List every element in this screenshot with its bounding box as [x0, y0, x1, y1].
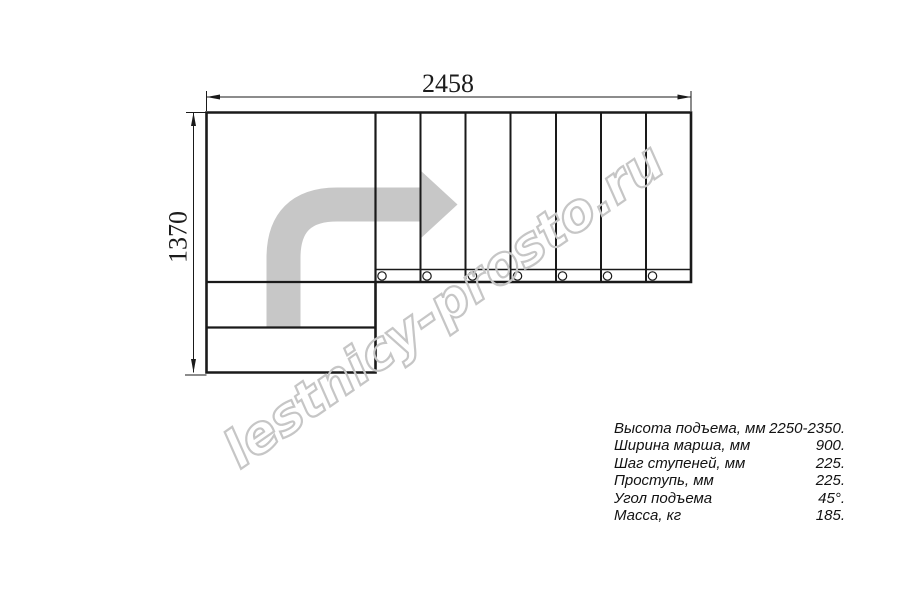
spec-label: Шаг ступеней, мм: [614, 455, 816, 472]
dim-arrow-up-icon: [191, 113, 196, 127]
spec-row-angle: Угол подъема 45°.: [614, 490, 845, 507]
spec-value: 45°.: [818, 490, 845, 507]
spec-table: Высота подъема, мм 2250-2350. Ширина мар…: [614, 420, 845, 525]
bolt-circle: [423, 272, 431, 280]
bolt-circle: [378, 272, 386, 280]
bolt-circle: [603, 272, 611, 280]
dim-arrow-left-icon: [207, 95, 221, 100]
spec-row-march-width: Ширина марша, мм 900.: [614, 437, 845, 454]
dim-arrow-right-icon: [678, 95, 692, 100]
dimension-height-value: 1370: [164, 211, 193, 263]
spec-value: 185.: [816, 507, 845, 524]
spec-value: 900.: [816, 437, 845, 454]
spec-label: Ширина марша, мм: [614, 437, 816, 454]
spec-label: Проступь, мм: [614, 472, 816, 489]
dim-arrow-down-icon: [191, 359, 196, 373]
walk-direction-arrow: [284, 170, 458, 327]
spec-row-mass: Масса, кг 185.: [614, 507, 845, 524]
dimension-width-value: 2458: [422, 69, 474, 98]
bolt-circle: [468, 272, 476, 280]
bolt-circle: [648, 272, 656, 280]
spec-value: 225.: [816, 455, 845, 472]
spec-value: 225.: [816, 472, 845, 489]
spec-value: 2250-2350.: [769, 420, 845, 437]
bolt-circle: [558, 272, 566, 280]
spec-label: Масса, кг: [614, 507, 816, 524]
walk-arrow-head-icon: [420, 170, 458, 239]
spec-label: Высота подъема, мм: [614, 420, 769, 437]
spec-label: Угол подъема: [614, 490, 818, 507]
spec-row-step-pitch: Шаг ступеней, мм 225.: [614, 455, 845, 472]
bolt-circle: [513, 272, 521, 280]
spec-row-height: Высота подъема, мм 2250-2350.: [614, 420, 845, 437]
staircase-drawing-page: 2458 1370 lestnicy-prosto.ru Высота подъ…: [0, 0, 900, 600]
spec-row-tread: Проступь, мм 225.: [614, 472, 845, 489]
walk-arrow-shaft: [284, 205, 421, 328]
